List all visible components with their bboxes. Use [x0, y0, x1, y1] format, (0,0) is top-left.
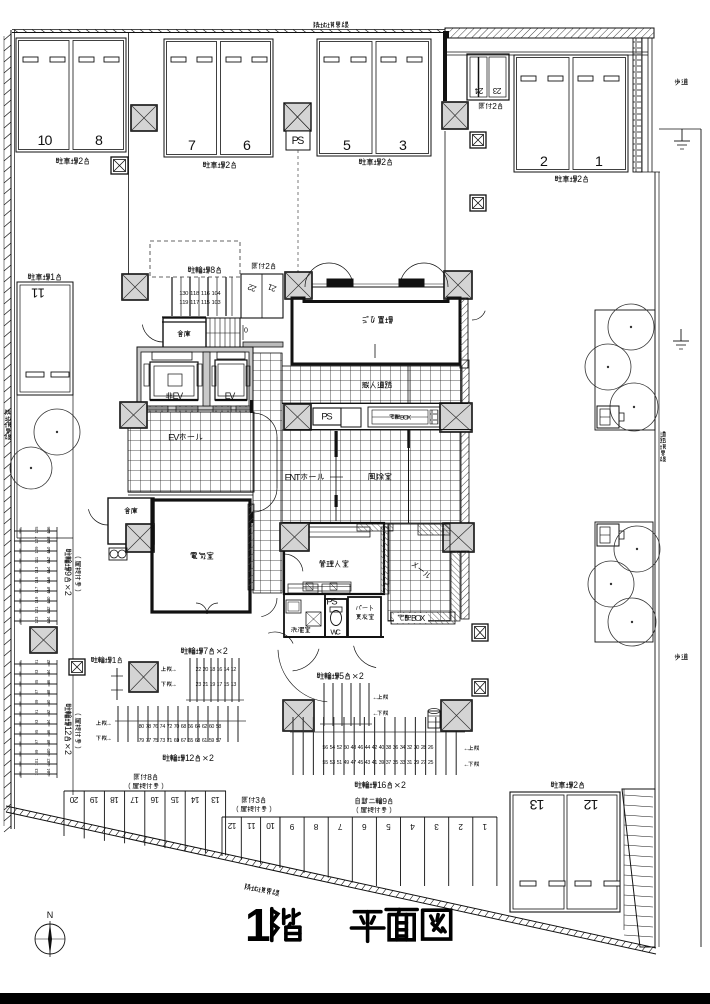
svg-text:104: 104: [46, 768, 51, 776]
svg-text:5: 5: [226, 682, 229, 688]
svg-text:9: 9: [176, 738, 179, 744]
svg-text:9: 9: [289, 822, 294, 832]
svg-text:8: 8: [218, 724, 221, 730]
svg-text:0: 0: [45, 133, 53, 149]
svg-text:0: 0: [211, 724, 214, 730]
svg-text:2: 2: [339, 745, 342, 751]
svg-text:117: 117: [34, 586, 39, 593]
svg-text:6: 6: [395, 745, 398, 751]
svg-text:N: N: [47, 910, 54, 920]
svg-text:8: 8: [183, 724, 186, 730]
svg-text:6: 6: [190, 724, 193, 730]
svg-text:1: 1: [112, 655, 117, 665]
svg-text:1: 1: [31, 285, 38, 300]
svg-text:2: 2: [583, 796, 591, 812]
svg-text:2: 2: [63, 750, 73, 755]
svg-text:0: 0: [381, 745, 384, 751]
svg-text:3: 3: [492, 86, 497, 96]
svg-text:121: 121: [34, 606, 39, 614]
svg-text:2: 2: [359, 671, 364, 681]
svg-text:3: 3: [367, 760, 370, 766]
svg-text:86: 86: [46, 679, 51, 684]
svg-text:98: 98: [46, 739, 51, 744]
svg-text:5: 5: [339, 671, 344, 681]
svg-text:2: 2: [458, 822, 463, 832]
svg-text:2: 2: [78, 156, 83, 166]
svg-text:8: 8: [210, 265, 215, 275]
svg-text:2: 2: [573, 780, 578, 790]
svg-text:8: 8: [313, 822, 318, 832]
svg-text:99: 99: [34, 749, 39, 754]
svg-text:97: 97: [34, 739, 39, 744]
svg-text:3: 3: [332, 760, 335, 766]
svg-text:→: →: [105, 735, 112, 742]
svg-text:0: 0: [266, 821, 271, 831]
svg-text:0: 0: [416, 745, 419, 751]
svg-text:5: 5: [190, 738, 193, 744]
svg-text:3: 3: [233, 682, 236, 688]
svg-text:1: 1: [169, 738, 172, 744]
svg-text:6: 6: [325, 745, 328, 751]
svg-text:0: 0: [176, 724, 179, 730]
svg-text:9: 9: [211, 738, 214, 744]
svg-text:106: 106: [46, 526, 51, 534]
svg-text:122: 122: [46, 606, 51, 614]
svg-text:8: 8: [423, 745, 426, 751]
svg-text:V: V: [229, 391, 235, 401]
svg-text:←: ←: [372, 694, 379, 701]
svg-text:2: 2: [227, 821, 232, 831]
svg-text:1: 1: [247, 821, 252, 831]
svg-text:1: 1: [482, 822, 487, 832]
svg-text:8: 8: [212, 667, 215, 673]
svg-text:3: 3: [198, 682, 201, 688]
svg-text:→: →: [105, 720, 112, 727]
svg-text:7: 7: [218, 738, 221, 744]
svg-text:4: 4: [410, 822, 415, 832]
svg-text:91: 91: [34, 709, 39, 714]
svg-text:110: 110: [46, 546, 51, 553]
svg-text:4: 4: [197, 724, 200, 730]
svg-text:6: 6: [381, 780, 386, 790]
svg-text:2: 2: [233, 667, 236, 673]
svg-text:2: 2: [577, 174, 582, 184]
svg-text:7: 7: [148, 738, 151, 744]
svg-text:V: V: [177, 391, 183, 401]
svg-text:123: 123: [34, 616, 39, 624]
svg-text:2: 2: [225, 160, 230, 170]
svg-text:101: 101: [34, 758, 39, 766]
svg-text:5: 5: [155, 738, 158, 744]
svg-text:2: 2: [169, 724, 172, 730]
svg-text:85: 85: [34, 679, 39, 684]
svg-text:2: 2: [198, 667, 201, 673]
svg-text:88: 88: [46, 689, 51, 694]
svg-text:←: ←: [463, 761, 470, 768]
svg-text:6: 6: [431, 745, 434, 751]
svg-text:9: 9: [63, 571, 73, 576]
svg-text:1: 1: [204, 738, 207, 744]
svg-text:5: 5: [360, 760, 363, 766]
svg-text:2: 2: [401, 780, 406, 790]
svg-text:1: 1: [50, 272, 55, 282]
svg-text:V: V: [173, 431, 180, 442]
svg-text:3: 3: [434, 822, 439, 832]
svg-text:84: 84: [46, 669, 51, 674]
svg-text:6: 6: [155, 724, 158, 730]
svg-text:7: 7: [423, 760, 426, 766]
svg-text:8: 8: [353, 745, 356, 751]
svg-text:T: T: [295, 471, 301, 482]
svg-text:113: 113: [34, 566, 39, 573]
svg-text:4: 4: [402, 745, 405, 751]
svg-text:7: 7: [203, 646, 208, 656]
svg-text:X: X: [420, 613, 426, 623]
svg-text:103: 103: [34, 768, 39, 776]
svg-text:5: 5: [170, 795, 175, 805]
svg-text:119: 119: [34, 596, 39, 603]
svg-text:96: 96: [46, 729, 51, 734]
svg-text:124: 124: [46, 616, 51, 624]
svg-text:2: 2: [189, 753, 194, 763]
svg-text:9: 9: [416, 760, 419, 766]
svg-text:89: 89: [34, 699, 39, 704]
svg-text:9: 9: [381, 760, 384, 766]
svg-text:3: 3: [255, 795, 260, 805]
svg-text:7: 7: [219, 682, 222, 688]
svg-text:9: 9: [90, 795, 95, 805]
svg-text:5: 5: [325, 760, 328, 766]
svg-text:112: 112: [46, 556, 51, 563]
svg-text:2: 2: [209, 753, 214, 763]
svg-text:→: →: [170, 681, 177, 688]
svg-text:9: 9: [346, 760, 349, 766]
svg-text:107: 107: [34, 536, 39, 544]
svg-text:3: 3: [402, 760, 405, 766]
svg-text:114: 114: [46, 566, 51, 573]
svg-text:1: 1: [245, 899, 271, 951]
svg-text:4: 4: [367, 745, 370, 751]
svg-text:116: 116: [46, 576, 51, 583]
svg-text:9: 9: [212, 682, 215, 688]
svg-text:102: 102: [46, 758, 51, 766]
svg-text:8: 8: [95, 133, 103, 149]
svg-text:2: 2: [374, 745, 377, 751]
svg-text:87: 87: [34, 689, 39, 694]
svg-text:83: 83: [34, 669, 39, 674]
svg-text:6: 6: [150, 795, 155, 805]
svg-text:6: 6: [243, 138, 251, 154]
svg-text:S: S: [297, 135, 304, 147]
svg-text:7: 7: [388, 760, 391, 766]
svg-text:2: 2: [540, 154, 548, 170]
svg-text:0: 0: [141, 724, 144, 730]
svg-text:4: 4: [474, 86, 479, 96]
svg-text:5: 5: [431, 760, 434, 766]
svg-text:81: 81: [34, 659, 39, 664]
svg-text:←: ←: [463, 745, 470, 752]
svg-text:9: 9: [141, 738, 144, 744]
svg-text:90: 90: [46, 699, 51, 704]
svg-text:3: 3: [211, 795, 216, 805]
svg-text:7: 7: [130, 795, 135, 805]
svg-text:7: 7: [188, 138, 196, 154]
svg-text:1: 1: [374, 760, 377, 766]
svg-text:5: 5: [343, 138, 351, 154]
svg-text:109: 109: [34, 546, 39, 554]
svg-text:5: 5: [395, 760, 398, 766]
svg-text:S: S: [326, 410, 332, 421]
svg-text:6: 6: [360, 745, 363, 751]
svg-text:3: 3: [162, 738, 165, 744]
svg-text:115: 115: [34, 576, 39, 583]
svg-text:2: 2: [492, 101, 497, 111]
svg-text:108: 108: [46, 536, 51, 544]
svg-text:118: 118: [46, 586, 51, 593]
svg-text:2: 2: [204, 724, 207, 730]
svg-text:2: 2: [63, 730, 73, 735]
svg-text:8: 8: [388, 745, 391, 751]
svg-text:1: 1: [339, 760, 342, 766]
svg-text:7: 7: [196, 300, 199, 306]
svg-text:3: 3: [197, 738, 200, 744]
svg-text:9: 9: [382, 796, 387, 806]
svg-text:120: 120: [46, 596, 51, 604]
svg-text:←: ←: [372, 710, 379, 717]
svg-text:82: 82: [46, 659, 51, 664]
svg-text:1: 1: [595, 154, 603, 170]
svg-text:8: 8: [110, 795, 115, 805]
svg-text:4: 4: [332, 745, 335, 751]
svg-text:2: 2: [409, 745, 412, 751]
svg-text:4: 4: [162, 724, 165, 730]
svg-text:93: 93: [34, 719, 39, 724]
svg-text:105: 105: [34, 526, 39, 534]
svg-text:4: 4: [226, 667, 229, 673]
svg-text:S: S: [331, 595, 337, 606]
svg-text:X: X: [407, 414, 412, 421]
svg-text:0: 0: [69, 795, 74, 805]
svg-text:C: C: [335, 628, 341, 637]
svg-text:8: 8: [147, 772, 152, 782]
svg-text:0: 0: [346, 745, 349, 751]
svg-text:2: 2: [381, 157, 386, 167]
svg-text:1: 1: [205, 682, 208, 688]
svg-text:100: 100: [46, 748, 51, 756]
svg-text:0: 0: [244, 327, 248, 335]
svg-text:6: 6: [219, 667, 222, 673]
svg-text:7: 7: [353, 760, 356, 766]
svg-text:3: 3: [529, 796, 537, 812]
svg-text:3: 3: [399, 138, 407, 154]
svg-text:95: 95: [34, 729, 39, 734]
svg-text:92: 92: [46, 709, 51, 714]
svg-text:1: 1: [409, 760, 412, 766]
svg-text:0: 0: [205, 667, 208, 673]
svg-text:6: 6: [362, 822, 367, 832]
svg-text:94: 94: [46, 719, 51, 724]
svg-text:5: 5: [386, 822, 391, 832]
svg-text:→: →: [170, 666, 177, 673]
svg-text:9: 9: [185, 300, 188, 306]
svg-text:8: 8: [148, 724, 151, 730]
svg-text:4: 4: [191, 795, 196, 805]
svg-text:2: 2: [223, 646, 228, 656]
svg-text:7: 7: [183, 738, 186, 744]
svg-text:2: 2: [63, 591, 73, 596]
svg-text:2: 2: [265, 261, 270, 271]
svg-text:7: 7: [338, 822, 343, 832]
svg-text:111: 111: [34, 556, 39, 563]
